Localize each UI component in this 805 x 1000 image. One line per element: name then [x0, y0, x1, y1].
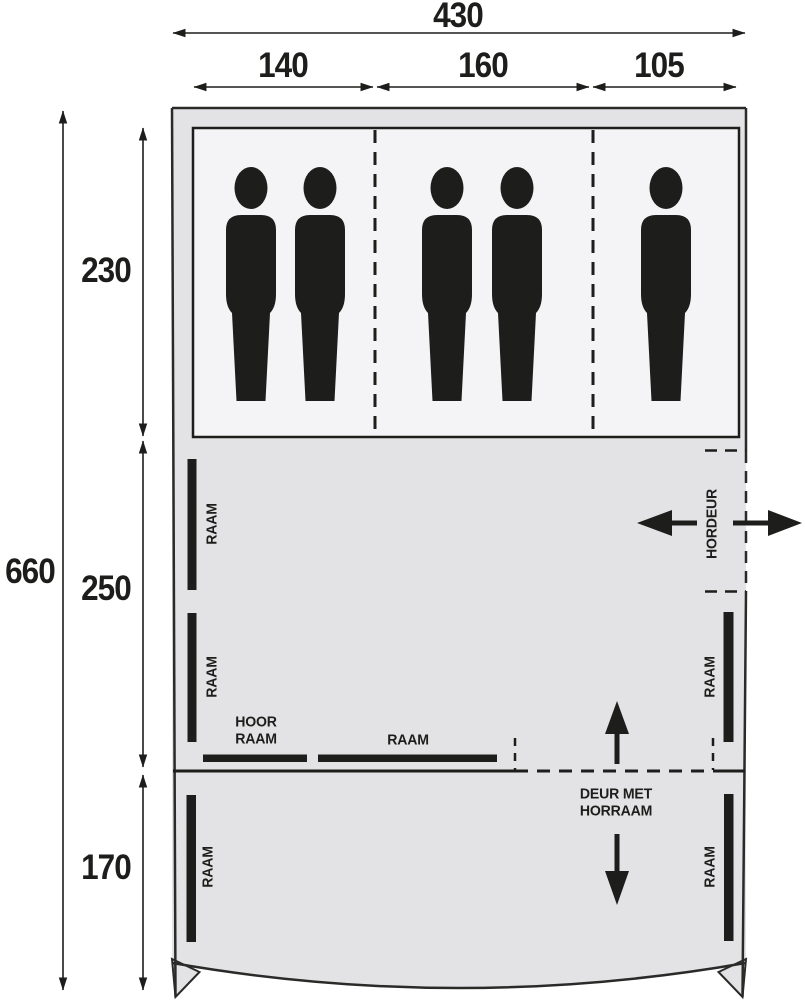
- screen-door-label: HORDEUR: [704, 489, 721, 559]
- front-door-label-line2: HORRAAM: [580, 803, 652, 820]
- window-bar: [187, 795, 197, 942]
- front-door-label-line1: DEUR MET: [580, 787, 652, 804]
- arrow-right-icon: [768, 510, 802, 536]
- window-label: RAAM: [204, 503, 221, 545]
- window-bar: [318, 755, 497, 763]
- window-label: RAAM: [387, 732, 429, 749]
- window-bar: [188, 459, 197, 590]
- window-bar: [203, 755, 307, 763]
- width-label-105: 105: [634, 46, 684, 86]
- window-bar: [188, 613, 197, 742]
- front-door-label: DEUR MET HORRAAM: [580, 787, 652, 820]
- height-label-170: 170: [81, 848, 131, 888]
- tent-floorplan-diagram: 430 140 160 105 660 230 250 170 RAAM RAA…: [0, 0, 805, 1000]
- width-label-140: 140: [258, 46, 308, 86]
- total-height-label: 660: [5, 552, 55, 592]
- side-window-label-line2: RAAM: [235, 731, 277, 748]
- side-window-label-line1: HOOR: [235, 715, 277, 732]
- window-bar: [724, 612, 734, 742]
- height-label-250: 250: [81, 569, 131, 609]
- window-label: RAAM: [200, 846, 217, 888]
- window-label: RAAM: [204, 656, 221, 698]
- window-label: RAAM: [702, 846, 719, 888]
- sleeping-cabin: [193, 128, 739, 437]
- window-bar: [724, 794, 734, 941]
- window-label: RAAM: [702, 656, 719, 698]
- height-label-230: 230: [81, 251, 131, 291]
- side-window-label: HOOR RAAM: [235, 715, 277, 748]
- width-label-160: 160: [458, 46, 508, 86]
- total-width-label: 430: [433, 0, 483, 36]
